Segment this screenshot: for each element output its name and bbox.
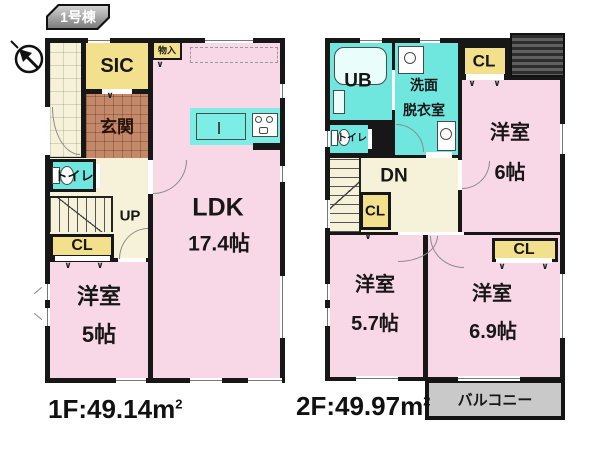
window — [190, 378, 222, 383]
label-closet-2f-mid: CL — [365, 204, 385, 219]
hanger-mark: ∨ — [156, 59, 163, 70]
shutter-tick — [34, 287, 42, 294]
window — [45, 284, 50, 300]
wall-stub — [253, 143, 280, 150]
hanger-mark: ∨ — [64, 260, 71, 271]
room-western-6 — [462, 80, 560, 232]
floor-plan-canvas: 1号棟 ∨ ∨ ∨ — [0, 0, 600, 450]
room-western-5 — [50, 262, 148, 378]
area-label-2f: 2F:49.97m2 — [296, 391, 430, 422]
stairs-up — [50, 196, 113, 232]
burner-icon — [259, 127, 268, 134]
window — [325, 284, 330, 300]
label-up: UP — [120, 209, 141, 224]
window — [116, 378, 146, 383]
door-opening — [432, 232, 464, 235]
washing-machine-drum-icon — [440, 128, 452, 140]
door-opening — [392, 70, 395, 110]
label-western-57: 洋室 — [355, 275, 395, 295]
bath-stool-icon — [333, 90, 345, 114]
label-toilet-1f: トイレ — [54, 170, 93, 183]
hanger-mark: ∨ — [106, 90, 113, 101]
burner-icon — [255, 116, 262, 123]
shutter-tick — [34, 313, 42, 320]
hanger-mark: ∨ — [364, 231, 371, 242]
label-washroom-1: 洗面 — [410, 78, 438, 92]
balcony: バルコニー — [425, 379, 565, 420]
window — [280, 166, 285, 182]
hanger-mark: ∨ — [96, 260, 103, 271]
window — [88, 38, 110, 43]
window — [325, 200, 330, 228]
window — [325, 308, 330, 326]
label-balcony: バルコニー — [458, 389, 533, 410]
upper-cabinet-dashed — [190, 47, 278, 63]
door-opening — [368, 129, 372, 149]
hanger-mark: ∨ — [541, 261, 548, 272]
window — [360, 38, 382, 43]
window — [420, 38, 440, 43]
window — [205, 38, 253, 43]
area-label-1f: 1F:49.14m2 — [48, 394, 182, 425]
label-closet-2f-bottom: CL — [513, 242, 534, 258]
washbasin-bowl-icon — [404, 52, 416, 64]
window — [45, 308, 50, 326]
door-opening — [426, 152, 452, 158]
faucet-icon — [218, 122, 220, 134]
label-western-5-size: 5帖 — [82, 324, 116, 346]
entrance-opening — [45, 107, 50, 155]
building-tag: 1号棟 — [46, 4, 110, 30]
label-unit-bath: UB — [344, 72, 371, 91]
hanger-mark: ∨ — [498, 261, 505, 272]
building-tag-label: 1号棟 — [48, 6, 108, 28]
roof-hatch — [510, 33, 565, 77]
burner-icon — [266, 116, 273, 123]
label-western-6: 洋室 — [490, 123, 530, 143]
window — [280, 84, 285, 98]
label-genkan: 玄関 — [100, 119, 134, 136]
label-closet-1f: CL — [71, 238, 92, 254]
label-western-69: 洋室 — [472, 284, 512, 304]
window — [356, 376, 398, 381]
label-western-69-size: 6.9帖 — [469, 322, 517, 342]
label-ldk-size: 17.4帖 — [188, 234, 250, 255]
stairs-down — [330, 158, 361, 232]
window — [325, 131, 330, 147]
hanger-mark: ∨ — [468, 78, 475, 89]
window — [280, 276, 285, 338]
door-opening — [96, 164, 100, 188]
label-washroom-2: 脱衣室 — [403, 103, 445, 117]
hanger-mark: ∨ — [493, 78, 500, 89]
label-sic: SIC — [100, 56, 133, 76]
label-toilet-2f: トイレ — [337, 134, 367, 144]
window — [560, 124, 565, 154]
label-western-6-size: 6帖 — [494, 163, 525, 183]
label-western-57-size: 5.7帖 — [351, 314, 399, 334]
label-ldk: LDK — [192, 196, 243, 221]
compass-icon — [8, 38, 46, 76]
kitchen-sink — [196, 113, 246, 140]
window — [458, 376, 520, 381]
label-dn: DN — [380, 167, 407, 186]
label-closet-2f-top: CL — [473, 53, 496, 70]
window — [248, 378, 282, 383]
label-storage: 物入 — [158, 47, 176, 56]
window — [560, 274, 565, 338]
label-western-5: 洋室 — [77, 286, 121, 308]
